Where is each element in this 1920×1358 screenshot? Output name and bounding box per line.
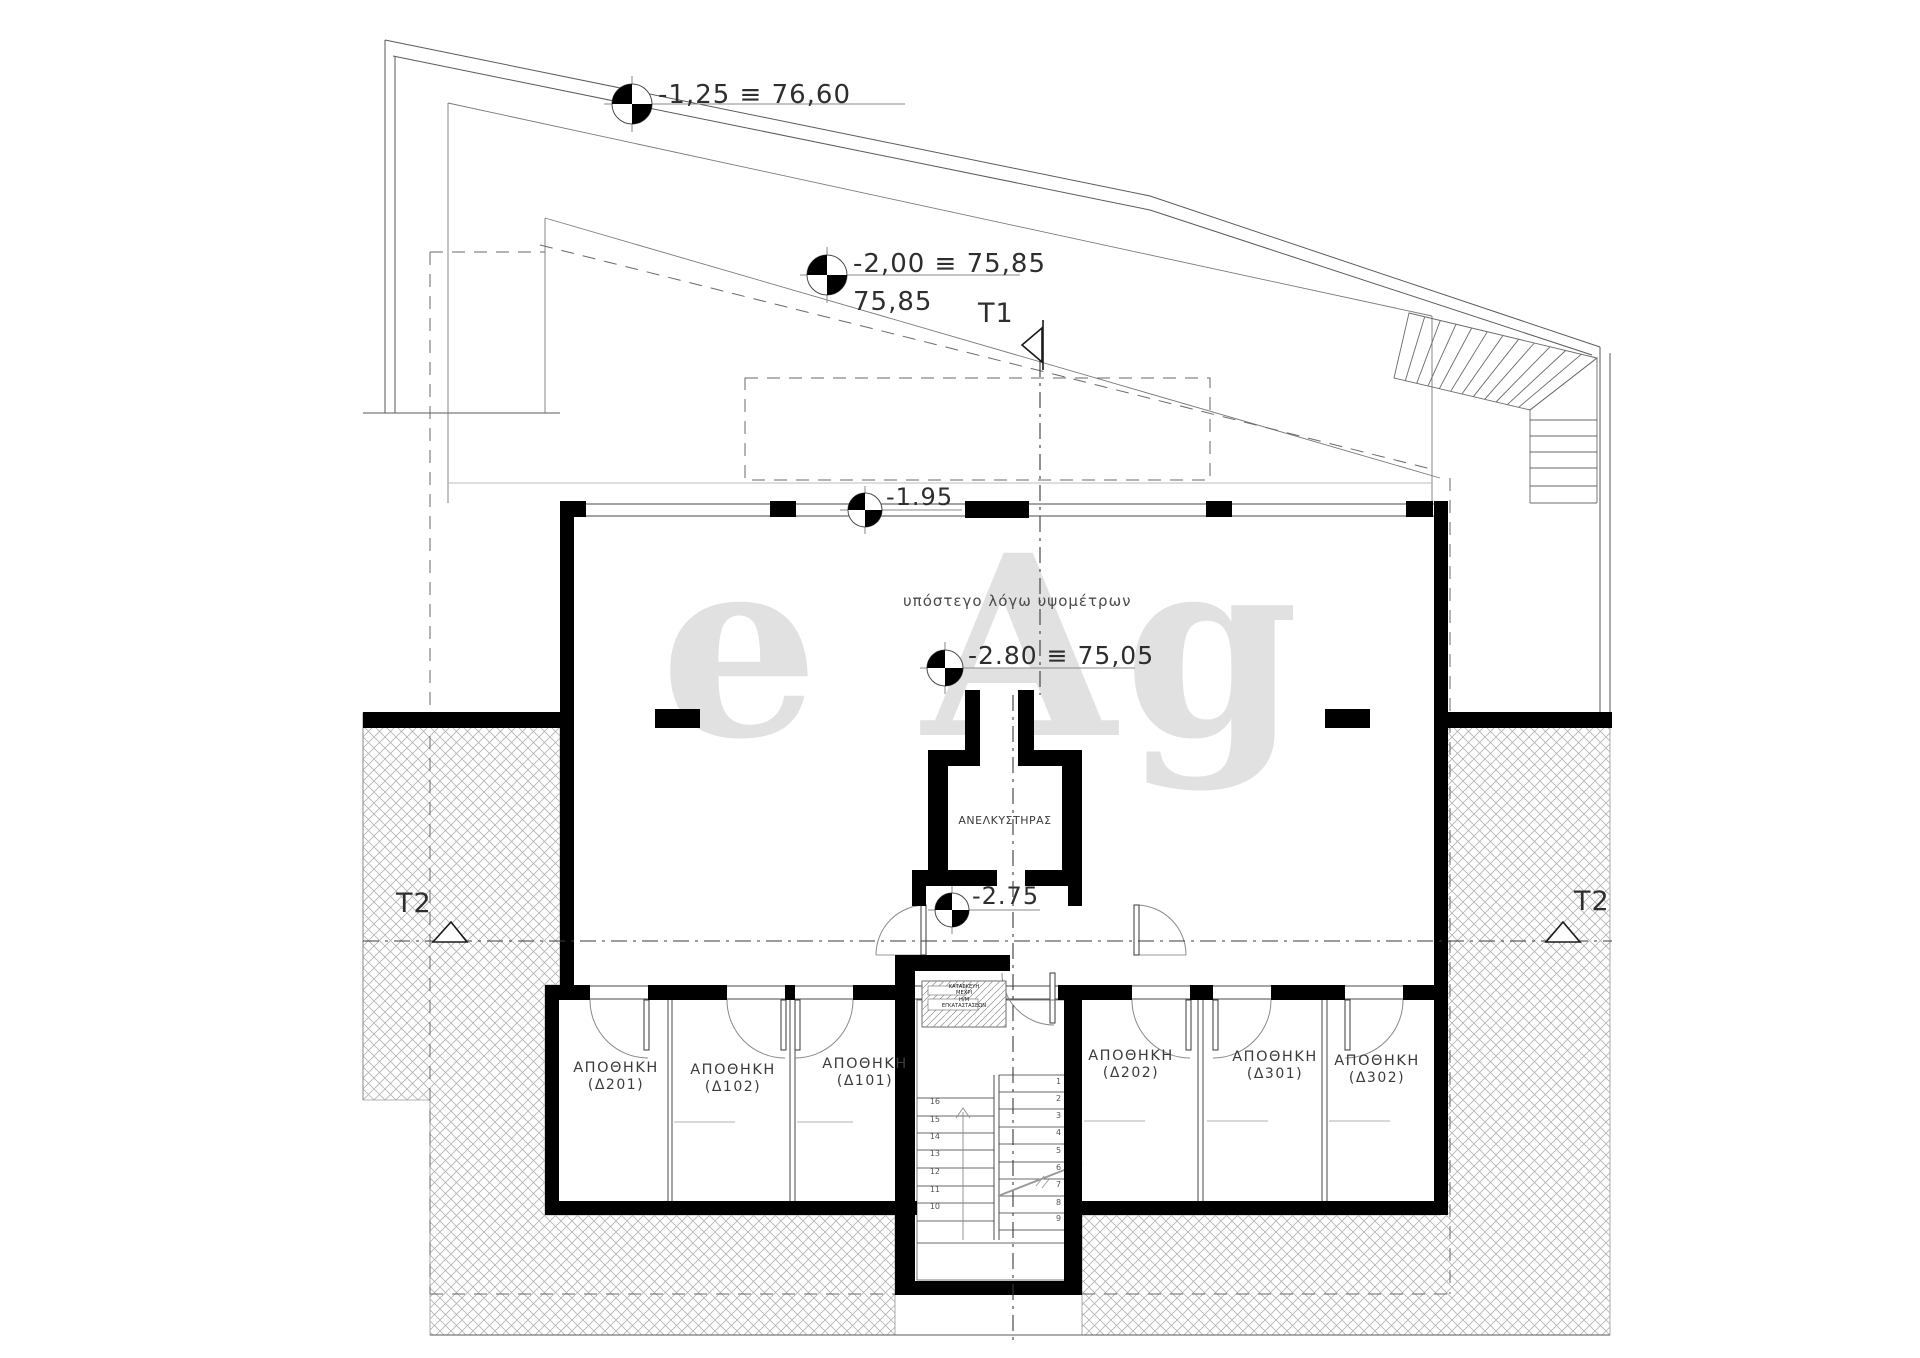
stair-number: 12 [924, 1167, 940, 1176]
room-label-d101: ΑΠΟΘΗΚΗ(Δ101) [780, 1056, 950, 1090]
stair-number: 13 [924, 1149, 940, 1158]
stair-number: 11 [924, 1185, 940, 1194]
floor-plan-canvas: e Ag [0, 0, 1920, 1358]
elevation-benchmarks [604, 76, 1135, 934]
stair-number: 9 [1056, 1214, 1072, 1223]
staircase [917, 1000, 1082, 1280]
stair-number: 2 [1056, 1094, 1072, 1103]
stair-number: 16 [924, 1097, 940, 1106]
stair-number: 6 [1056, 1163, 1072, 1172]
stair-number: 15 [924, 1115, 940, 1124]
stair-number: 8 [1056, 1198, 1072, 1207]
stair-number: 3 [1056, 1111, 1072, 1120]
earth-hatch-left [363, 713, 895, 1335]
elevation-marker-1-label: -1,25 ≡ 76,60 [658, 80, 851, 110]
elevator-label: ΑΝΕΛΚΥΣΤΗΡΑΣ [958, 814, 1051, 827]
stair-number: 5 [1056, 1146, 1072, 1155]
section-t2-left-label: T2 [396, 888, 432, 919]
stair-number: 14 [924, 1132, 940, 1141]
canopy-note: υπόστεγο λόγω υψομέτρων [903, 592, 1132, 610]
stair-number: 1 [1056, 1077, 1072, 1086]
t1-triangle [1022, 328, 1042, 362]
service-box-note: ΚΑΤΑΣΚΕΥΗ ΜΕΧΡΙ Η/Μ ΕΓΚΑΤΑΣΤΑΣΕΩΝ [922, 984, 1006, 1010]
section-marker-triangles [433, 320, 1580, 942]
elevation-marker-2-label: -2,00 ≡ 75,85 [853, 249, 1046, 279]
elevation-marker-4-label: -2.80 ≡ 75,05 [968, 641, 1154, 670]
stair-number: 4 [1056, 1128, 1072, 1137]
section-t2-right-label: T2 [1574, 886, 1610, 917]
section-t1-label: T1 [978, 298, 1014, 329]
stair-number: 10 [924, 1202, 940, 1211]
elevation-marker-5-label: -2.75 [972, 882, 1039, 910]
stair-number: 7 [1056, 1180, 1072, 1189]
room-label-d302: ΑΠΟΘΗΚΗ(Δ302) [1292, 1053, 1462, 1087]
elevation-marker-2-sublabel: 75,85 [853, 287, 932, 317]
elevation-marker-3-label: -1.95 [886, 483, 953, 511]
ramp-stair-topright [1394, 313, 1597, 503]
plan-drawing [0, 0, 1920, 1358]
upper-outline [448, 103, 1440, 503]
